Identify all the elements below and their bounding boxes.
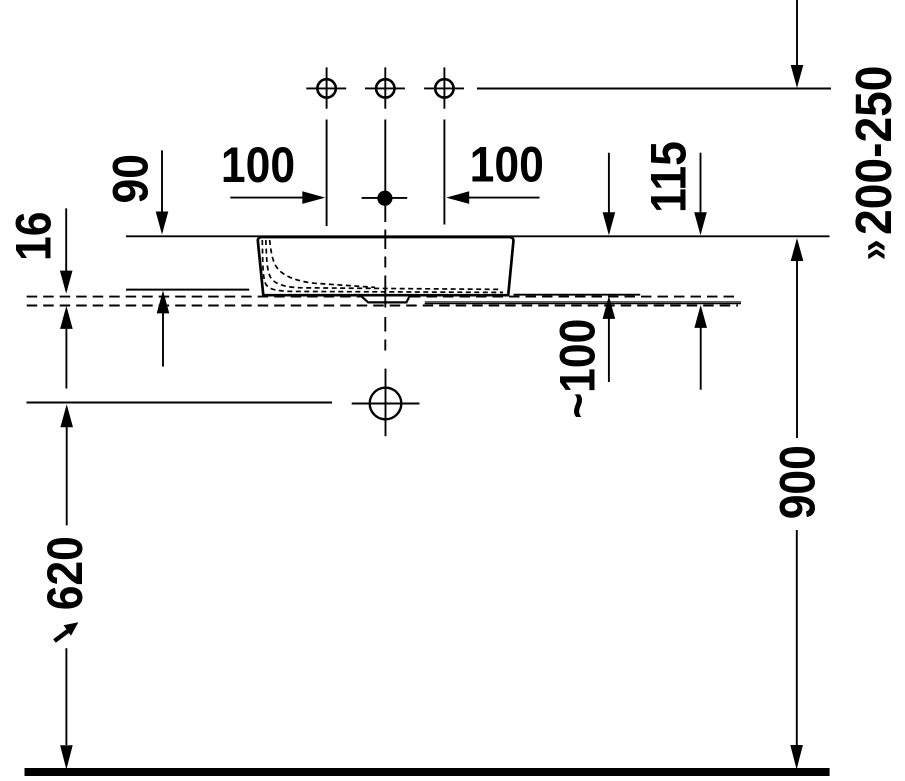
svg-text:900: 900: [770, 445, 826, 519]
svg-text:100: 100: [470, 137, 544, 193]
svg-text:620: 620: [38, 536, 94, 610]
svg-text:90: 90: [103, 154, 159, 203]
svg-text:16: 16: [6, 212, 62, 261]
svg-text:100: 100: [221, 137, 295, 193]
svg-text:»200-250: »200-250: [846, 66, 903, 261]
svg-text:115: 115: [641, 141, 697, 213]
svg-text:~100: ~100: [550, 319, 606, 419]
